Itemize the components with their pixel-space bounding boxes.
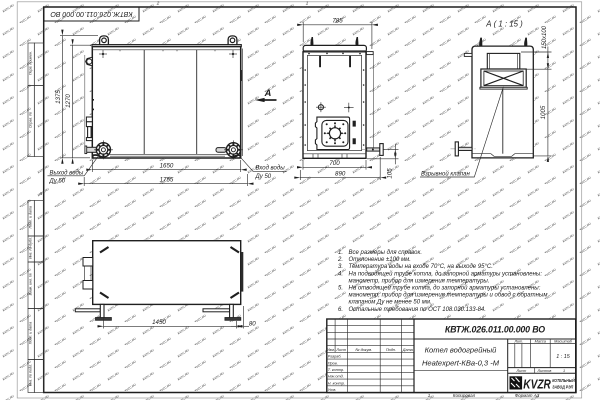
svg-text:Изм.: Изм. (327, 348, 335, 352)
svg-text:Утв.: Утв. (328, 388, 337, 392)
svg-text:Т. контр.: Т. контр. (328, 368, 344, 372)
svg-text:А: А (38, 191, 42, 196)
svg-text:Все размеры для справок.: Все размеры для справок. (349, 250, 423, 256)
svg-text:150х100: 150х100 (542, 25, 548, 49)
svg-text:1 : 15: 1 : 15 (556, 354, 570, 360)
svg-text:Листов: Листов (537, 369, 552, 373)
svg-text:890: 890 (335, 171, 346, 178)
svg-text:785: 785 (332, 18, 343, 25)
svg-text:1450: 1450 (152, 319, 166, 326)
svg-text:Подп. и дата: Подп. и дата (29, 206, 33, 229)
svg-text:Лист: Лист (335, 348, 346, 352)
svg-text:Нач.отд.: Нач.отд. (328, 375, 344, 379)
svg-text:КВТЖ.026.011.00.000 ВО: КВТЖ.026.011.00.000 ВО (445, 325, 545, 335)
svg-text:Подп.: Подп. (386, 348, 396, 352)
svg-text:2: 2 (156, 1, 160, 6)
svg-text:Остальные требования по ОСТ 10: Остальные требования по ОСТ 108.030.133-… (349, 307, 486, 313)
svg-text:1375: 1375 (55, 90, 62, 104)
svg-text:Формат А3: Формат А3 (515, 393, 540, 398)
svg-text:2.: 2. (337, 257, 343, 263)
svg-text:Справ. №: Справ. № (29, 112, 33, 128)
svg-text:1755: 1755 (160, 177, 174, 184)
svg-text:1270: 1270 (65, 94, 72, 108)
svg-text:Инв. № подл.: Инв. № подл. (29, 364, 33, 386)
svg-text:А ( 1 : 15 ): А ( 1 : 15 ) (485, 19, 523, 28)
svg-text:Перв. примен.: Перв. примен. (29, 51, 33, 75)
svg-text:1005: 1005 (540, 105, 547, 119)
svg-text:Лист: Лист (516, 369, 527, 373)
svg-text:На подводящей трубе котла, до: На подводящей трубе котла, до запорной а… (349, 270, 543, 277)
svg-text:Котел водогрейный: Котел водогрейный (425, 346, 498, 355)
svg-text:Дата: Дата (402, 348, 413, 352)
svg-text:На отводящей трубе котла, до з: На отводящей трубе котла, до запорной ар… (349, 285, 541, 292)
svg-text:Масштаб: Масштаб (554, 340, 573, 344)
svg-text:Лит.: Лит. (513, 340, 523, 344)
svg-text:Температура воды на входе 70°С: Температура воды на входе 70°С, на выход… (349, 264, 493, 270)
svg-text:80: 80 (249, 320, 256, 327)
svg-text:Heatexpert-КВа-0,3 -М: Heatexpert-КВа-0,3 -М (422, 359, 500, 368)
svg-text:Пров.: Пров. (328, 361, 338, 365)
svg-text:700: 700 (329, 160, 340, 167)
svg-text:Взам. инв. №: Взам. инв. № (29, 273, 33, 295)
svg-text:№ докум.: № докум. (355, 348, 372, 352)
svg-text:ЗАВОД РЭП: ЗАВОД РЭП (552, 385, 574, 390)
svg-text:5.: 5. (338, 286, 343, 292)
svg-text:Ду 50: Ду 50 (255, 174, 272, 180)
svg-text:клапаном Ду не менее 50 мм.: клапаном Ду не менее 50 мм. (349, 300, 432, 306)
svg-text:1.: 1. (338, 250, 343, 256)
svg-text:Подп. и дата: Подп. и дата (29, 322, 33, 345)
svg-text:манометр, прибор для измерения: манометр, прибор для измерения температу… (349, 278, 490, 284)
svg-text:6.: 6. (338, 307, 343, 313)
svg-text:4.: 4. (338, 271, 343, 277)
svg-text:Взрывной клапан: Взрывной клапан (421, 170, 470, 177)
svg-text:1650: 1650 (160, 163, 174, 170)
svg-text:Ду 50: Ду 50 (49, 179, 66, 185)
svg-text:А: А (264, 88, 272, 98)
svg-text:КВТЖ.026.011.00.000 ВО: КВТЖ.026.011.00.000 ВО (50, 10, 133, 18)
svg-text:Выход воды: Выход воды (50, 170, 84, 176)
svg-text:Вход воды: Вход воды (256, 166, 286, 172)
svg-text:Отклонение ±100 мм.: Отклонение ±100 мм. (349, 257, 411, 263)
svg-text:KVZR: KVZR (523, 376, 551, 391)
svg-text:1: 1 (563, 369, 565, 373)
svg-text:Масса: Масса (535, 340, 546, 344)
svg-text:Разраб.: Разраб. (328, 355, 342, 359)
svg-text:Н. контр.: Н. контр. (328, 381, 345, 385)
svg-text:3.: 3. (338, 264, 343, 270)
svg-text:КОТЕЛЬНЫЙ: КОТЕЛЬНЫЙ (552, 378, 575, 383)
svg-text:105: 105 (387, 168, 394, 179)
svg-text:Инв. № дубл.: Инв. № дубл. (29, 237, 33, 259)
svg-text:Копировал: Копировал (453, 393, 476, 398)
svg-text:манометр, прибор для измерения: манометр, прибор для измерения температу… (349, 293, 548, 299)
